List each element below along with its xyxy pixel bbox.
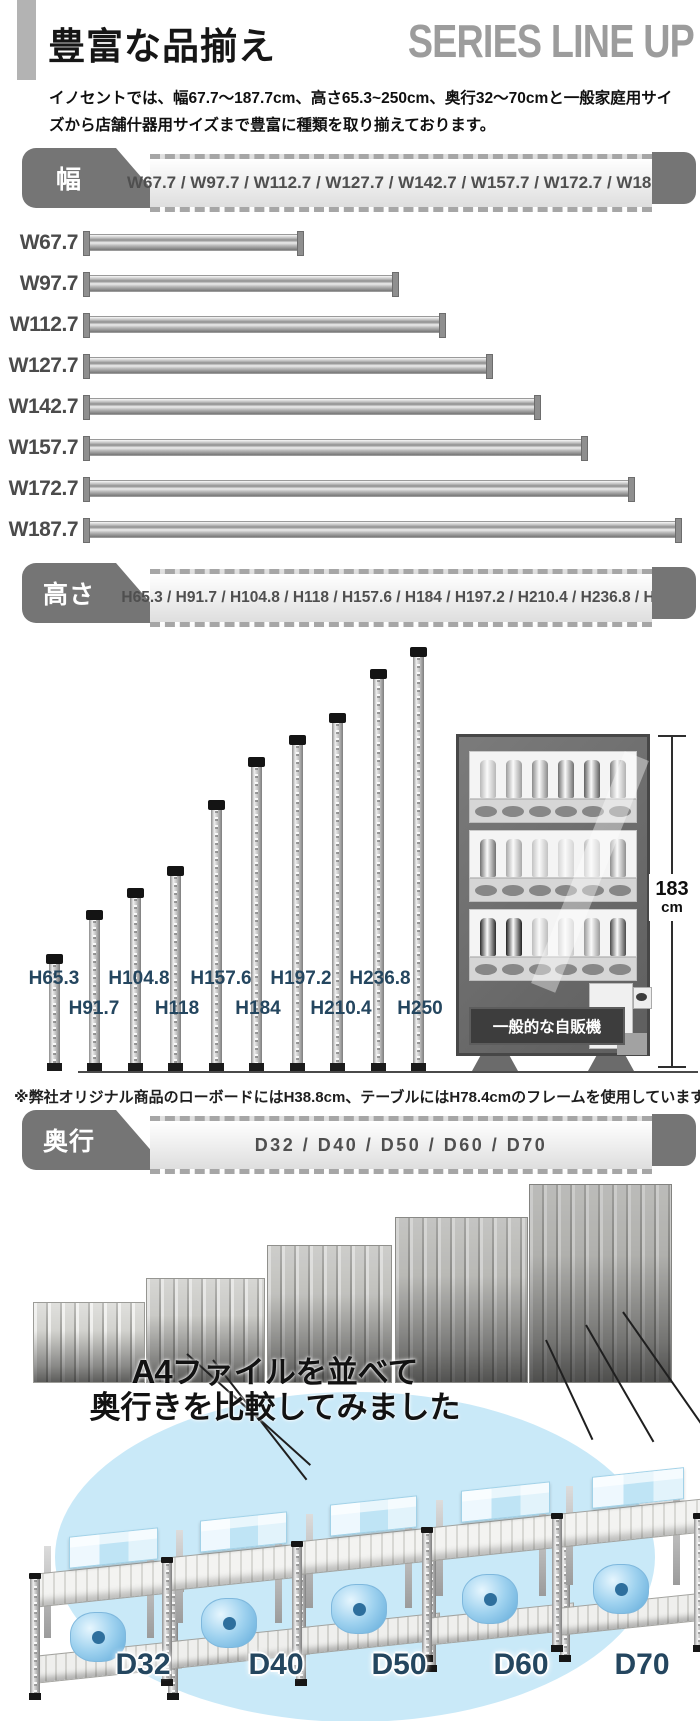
width-bars-diagram: W67.7W97.7W112.7W127.7W142.7W157.7W172.7…	[0, 222, 700, 550]
dispenser-slot	[502, 964, 524, 975]
width-bar-label: W187.7	[0, 518, 86, 542]
height-pole	[89, 919, 100, 1071]
shelf-depth-label: D70	[592, 1648, 692, 1682]
width-sizes-pill: W67.7 / W97.7 / W112.7 / W127.7 / W142.7…	[150, 154, 652, 212]
dispenser-slot	[529, 806, 551, 817]
dispenser-slot	[609, 885, 631, 896]
dispenser-slot	[502, 806, 524, 817]
width-tab-label: 幅	[56, 160, 82, 196]
bottle-icon	[558, 839, 574, 877]
bottle-icon	[532, 760, 548, 798]
width-section-banner: 幅 W67.7 / W97.7 / W112.7 / W127.7 / W142…	[0, 148, 700, 212]
water-jug	[593, 1564, 649, 1614]
page-title: 豊富な品揃え	[48, 16, 276, 70]
width-beam	[86, 398, 538, 415]
width-bar-row: W67.7	[0, 222, 700, 263]
vending-machine-foot	[472, 1056, 518, 1071]
bottle-icon	[506, 839, 522, 877]
height-value: 183	[649, 878, 695, 900]
shelf-depth-label: D32	[93, 1648, 193, 1682]
height-sizes-pill: H65.3 / H91.7 / H104.8 / H118 / H157.6 /…	[150, 569, 652, 627]
water-jug	[331, 1584, 387, 1634]
width-bar-row: W142.7	[0, 386, 700, 427]
width-bar-label: W142.7	[0, 395, 86, 419]
shelf-unit-D70	[550, 1482, 700, 1652]
height-pole	[251, 766, 262, 1071]
compare-title: A4ファイルを並べて 奥行きを比較してみました	[55, 1354, 495, 1425]
height-pole-label: H210.4	[310, 998, 371, 1020]
height-poles-diagram: 一般的な自販機 183 cm H65.3H91.7H104.8H118H157.…	[0, 630, 700, 1088]
height-pole	[373, 678, 384, 1071]
depth-tab-body: 奥行	[22, 1110, 116, 1170]
depth-tab-label: 奥行	[43, 1122, 95, 1158]
width-beam	[86, 357, 490, 374]
bottle-icon	[584, 760, 600, 798]
width-bar-row: W112.7	[0, 304, 700, 345]
vending-machine-foot	[588, 1056, 634, 1071]
bottle-icon	[610, 918, 626, 956]
frame-note: ※弊社オリジナル商品のローボードにはH38.8cm、テーブルにはH78.4cmの…	[14, 1086, 692, 1107]
width-beam	[86, 234, 301, 251]
compare-title-line1: A4ファイルを並べて	[55, 1354, 495, 1390]
intro-text: イノセントでは、幅67.7〜187.7cm、高さ65.3~250cm、奥行32〜…	[49, 86, 681, 139]
width-bar-row: W172.7	[0, 468, 700, 509]
front-post	[30, 1578, 40, 1693]
front-post	[422, 1532, 432, 1655]
dispenser-slot	[475, 885, 497, 896]
shelf-depth-label: D50	[349, 1648, 449, 1682]
depth-sizes-text: D32 / D40 / D50 / D60 / D70	[255, 1135, 548, 1156]
series-lineup-page: 豊富な品揃え SERIES LINE UP イノセントでは、幅67.7〜187.…	[0, 0, 700, 1721]
compare-title-line1-rest: ファイルを並べて	[172, 1355, 419, 1390]
vending-machine-height-label: 183 cm	[649, 874, 695, 921]
front-post	[694, 1518, 700, 1645]
height-pole-label: H250	[397, 998, 442, 1020]
width-beam	[86, 439, 585, 456]
bottle-icon	[506, 918, 522, 956]
width-sizes-text: W67.7 / W97.7 / W112.7 / W127.7 / W142.7…	[127, 173, 675, 193]
bottle-icon	[480, 839, 496, 877]
bottle-icon	[532, 839, 548, 877]
compare-title-a4: A4	[132, 1353, 172, 1390]
width-beam	[86, 275, 396, 292]
width-bar-row: W127.7	[0, 345, 700, 386]
height-pole-label: H104.8	[108, 968, 169, 990]
vending-machine-coin-slot	[633, 987, 652, 1009]
vending-machine-caption-box: 一般的な自販機	[469, 1007, 625, 1045]
depth-section-banner: 奥行 D32 / D40 / D50 / D60 / D70	[0, 1110, 700, 1174]
measure-tick-bottom	[658, 1066, 686, 1068]
width-beam	[86, 521, 679, 538]
dispenser-slot	[529, 885, 551, 896]
depth-tab: 奥行	[22, 1110, 168, 1170]
dispenser-slot	[502, 885, 524, 896]
width-bar-label: W172.7	[0, 477, 86, 501]
height-section-banner: 高さ H65.3 / H91.7 / H104.8 / H118 / H157.…	[0, 563, 700, 627]
dispenser-slot	[475, 806, 497, 817]
dispenser-slot	[582, 964, 604, 975]
height-pole-label: H184	[235, 998, 280, 1020]
bottle-icon	[506, 760, 522, 798]
bottle-icon	[480, 918, 496, 956]
bottle-icon	[480, 760, 496, 798]
width-bar-row: W97.7	[0, 263, 700, 304]
width-bar-row: W187.7	[0, 509, 700, 550]
page-subtitle: SERIES LINE UP	[408, 14, 694, 68]
dispenser-slot	[609, 964, 631, 975]
dispenser-slot	[475, 964, 497, 975]
bottle-icon	[584, 918, 600, 956]
vending-machine-illustration: 一般的な自販機	[456, 734, 650, 1056]
shelf-depth-label: D60	[471, 1648, 571, 1682]
width-bar-label: W112.7	[0, 313, 86, 337]
banner-end-cap	[652, 1114, 696, 1166]
width-bar-label: W157.7	[0, 436, 86, 460]
height-pole-label: H236.8	[349, 968, 410, 990]
banner-end-cap	[652, 567, 696, 619]
height-tab-label: 高さ	[43, 575, 95, 611]
width-tab-body: 幅	[22, 148, 116, 208]
height-pole	[211, 809, 222, 1071]
height-pole-label: H157.6	[190, 968, 251, 990]
width-bar-row: W157.7	[0, 427, 700, 468]
measure-tick-top	[658, 735, 686, 737]
water-jug	[462, 1574, 518, 1624]
height-pole-label: H197.2	[270, 968, 331, 990]
dispenser-slot	[555, 806, 577, 817]
height-pole	[292, 744, 303, 1071]
water-jug	[201, 1598, 257, 1648]
front-post	[552, 1518, 562, 1645]
depth-sizes-pill: D32 / D40 / D50 / D60 / D70	[150, 1116, 652, 1174]
width-bar-label: W67.7	[0, 231, 86, 255]
width-beam	[86, 316, 443, 333]
height-pole-label: H65.3	[29, 968, 80, 990]
compare-title-line2: 奥行きを比較してみました	[55, 1390, 495, 1425]
header-accent-bar	[17, 0, 36, 80]
height-pole-label: H118	[155, 998, 199, 1020]
width-beam	[86, 480, 632, 497]
height-unit: cm	[649, 900, 695, 917]
height-pole	[170, 875, 181, 1071]
shelf-depth-label: D40	[226, 1648, 326, 1682]
ground-line	[78, 1071, 698, 1073]
width-bar-label: W127.7	[0, 354, 86, 378]
height-tab-body: 高さ	[22, 563, 116, 623]
height-sizes-text: H65.3 / H91.7 / H104.8 / H118 / H157.6 /…	[121, 589, 680, 607]
bottle-icon	[558, 760, 574, 798]
width-bar-label: W97.7	[0, 272, 86, 296]
vending-machine-caption: 一般的な自販機	[493, 1015, 602, 1037]
banner-end-cap	[652, 152, 696, 204]
vending-dispenser-row	[469, 878, 637, 902]
height-pole-label: H91.7	[69, 998, 120, 1020]
